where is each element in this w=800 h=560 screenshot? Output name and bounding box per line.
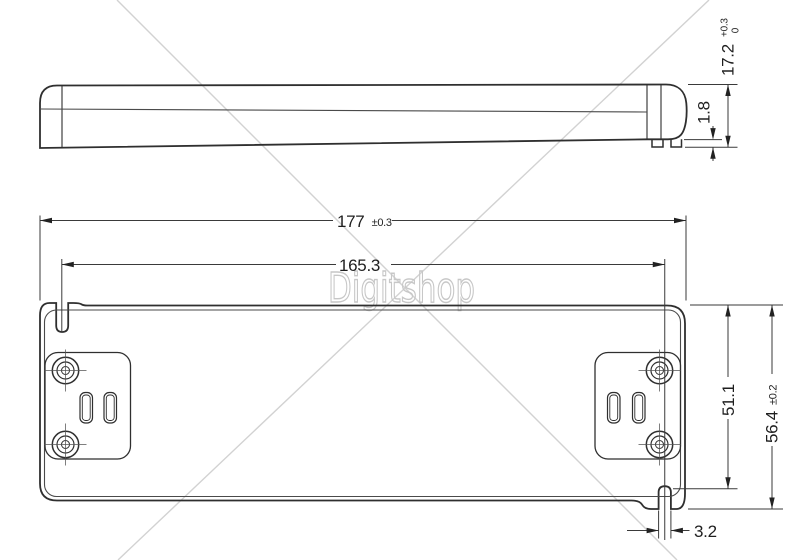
arrowhead — [725, 305, 730, 317]
arrowhead — [40, 218, 52, 223]
dim-foot-height: 1.8 — [684, 101, 722, 161]
arrowhead — [62, 262, 74, 267]
arrowhead — [725, 136, 730, 148]
top-view-outline — [40, 303, 685, 509]
arrowhead — [647, 528, 659, 533]
arrowhead — [710, 128, 715, 140]
screw-boss — [639, 350, 681, 392]
technical-drawing-page: Digitshop 17.2 +0.3 0 1.8 — [0, 0, 800, 560]
dim-body-height: 51.1 — [673, 305, 783, 489]
wire-slot — [80, 393, 117, 424]
dim-slot-width-label: 3.2 — [694, 522, 717, 541]
technical-drawing: Digitshop 17.2 +0.3 0 1.8 — [0, 0, 800, 560]
dim-overall-height-label: 56.4 ±0.2 — [763, 385, 782, 443]
arrowhead — [769, 498, 774, 510]
dim-foot-label: 1.8 — [695, 101, 714, 124]
wire-slot — [608, 393, 646, 424]
arrowhead — [674, 218, 686, 223]
dim-slot-width: 3.2 — [627, 511, 717, 542]
dim-height-label: 17.2 +0.3 0 — [715, 14, 742, 76]
side-view-outline — [40, 85, 687, 149]
arrowhead — [671, 528, 683, 533]
dim-width-label: 177 ±0.3 — [337, 212, 392, 231]
side-view — [40, 85, 687, 149]
screw-boss — [45, 350, 87, 392]
arrowhead — [725, 85, 730, 97]
arrowhead — [725, 477, 730, 489]
arrowhead — [769, 305, 774, 317]
side-view-lid-parting-line — [40, 109, 647, 112]
dim-body-height-label: 51.1 — [719, 384, 738, 416]
dim-span-label: 165.3 — [339, 256, 380, 275]
side-view-foot — [652, 139, 663, 147]
top-view — [40, 303, 685, 509]
arrowhead — [653, 262, 665, 267]
side-view-foot — [671, 139, 682, 147]
arrowhead — [710, 147, 715, 159]
